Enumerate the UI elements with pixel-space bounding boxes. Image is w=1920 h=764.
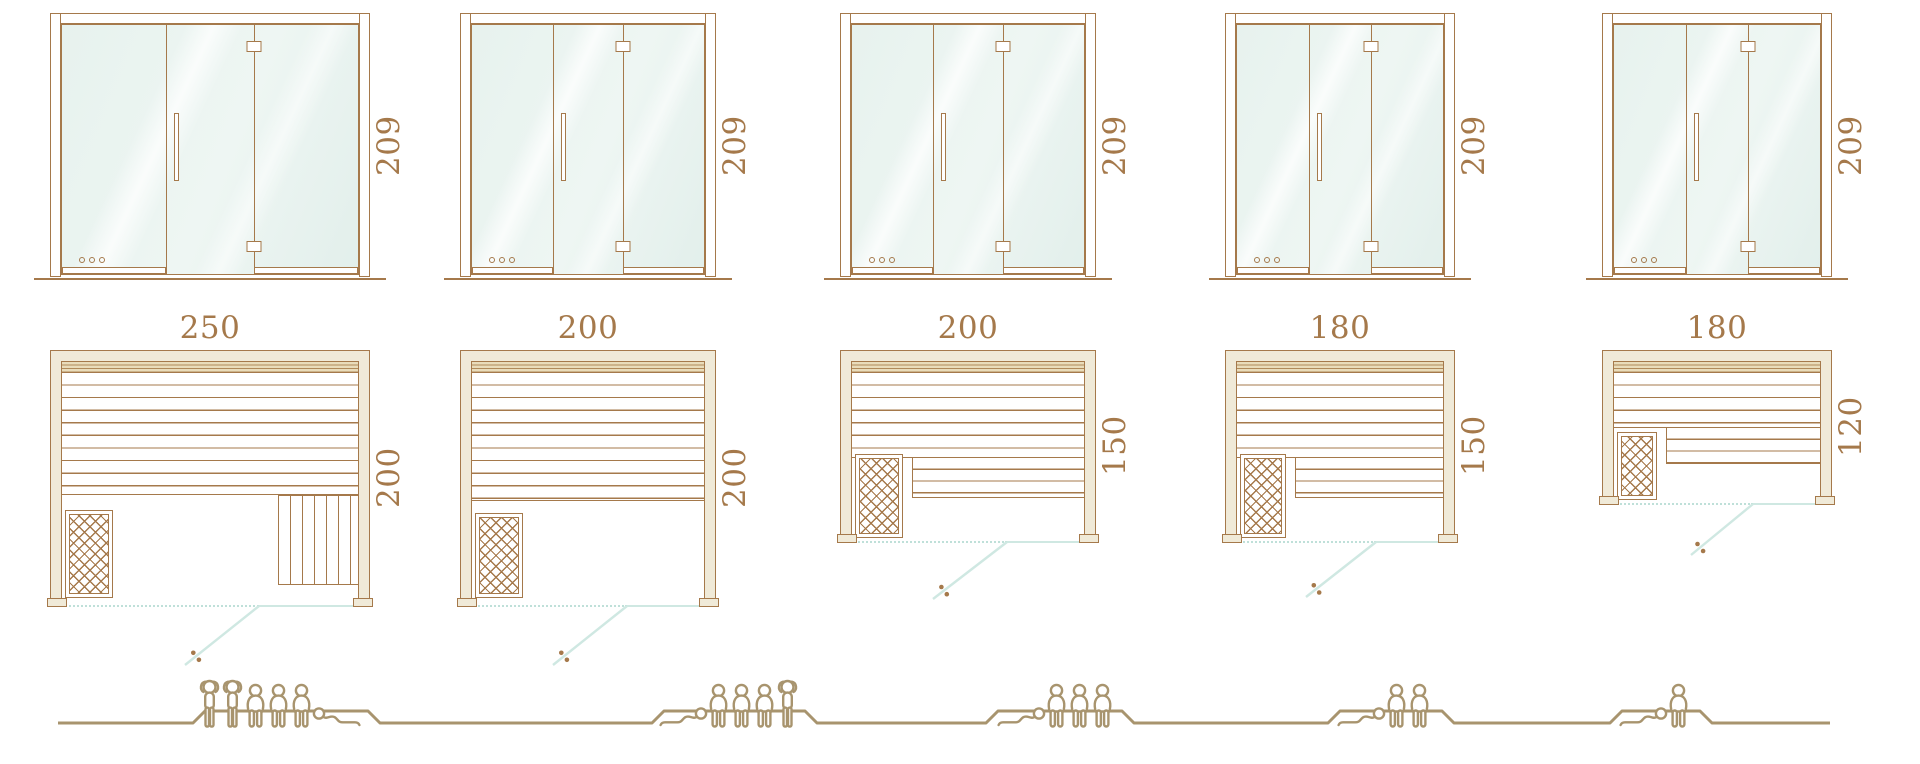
floor-plan-200x150 bbox=[840, 350, 1096, 542]
capacity-group-200x200 bbox=[661, 681, 796, 727]
frame-top-beam bbox=[840, 13, 1096, 24]
door-handle bbox=[174, 113, 179, 181]
floor-plan-200x200 bbox=[460, 350, 716, 606]
floor-plan-250x200 bbox=[50, 350, 370, 606]
frame-post-left bbox=[1602, 13, 1613, 277]
vent-holes-icon bbox=[869, 257, 895, 263]
front-elevation-200x150 bbox=[840, 13, 1096, 278]
heater-grid bbox=[69, 514, 109, 594]
vent-hole bbox=[1274, 257, 1280, 263]
door-handle bbox=[941, 113, 946, 181]
sauna-heater-icon bbox=[1617, 432, 1657, 500]
person-sitting-icon bbox=[1072, 685, 1088, 727]
frame-post-left bbox=[460, 13, 471, 277]
glass-divider-hinge bbox=[1003, 25, 1004, 274]
frame-top-beam bbox=[460, 13, 716, 24]
vent-hole bbox=[1264, 257, 1270, 263]
height-dimension-label: 209 bbox=[1457, 13, 1493, 278]
person-sitting-icon bbox=[248, 685, 264, 727]
person-sitting-icon bbox=[1095, 685, 1111, 727]
hinge-top-icon bbox=[1363, 41, 1378, 52]
width-dimension-label: 180 bbox=[1602, 311, 1832, 345]
hinge-top-icon bbox=[615, 41, 630, 52]
glass-front-dotted-line bbox=[855, 541, 1007, 543]
vent-holes-icon bbox=[79, 257, 105, 263]
vent-holes-icon bbox=[1631, 257, 1657, 263]
glass-divider-left bbox=[1309, 25, 1310, 274]
door-handle bbox=[1317, 113, 1322, 181]
wall-foot-right bbox=[353, 598, 373, 607]
vent-hole bbox=[889, 257, 895, 263]
depth-dimension-label: 120 bbox=[1834, 350, 1870, 504]
person-standing-icon bbox=[779, 681, 796, 727]
plan-interior bbox=[1613, 361, 1821, 504]
glass-front bbox=[1236, 24, 1444, 275]
glass-rail-left bbox=[1237, 267, 1309, 274]
door-knob-dot bbox=[1317, 590, 1322, 595]
wall-foot-right bbox=[699, 598, 719, 607]
sauna-heater-icon bbox=[1240, 454, 1286, 538]
capacity-group-180x150 bbox=[1339, 685, 1428, 727]
hinge-bottom-icon bbox=[1363, 241, 1378, 252]
lower-bench-slats bbox=[1666, 428, 1820, 464]
height-dimension-label: 209 bbox=[1834, 13, 1870, 278]
wall-foot-left bbox=[837, 534, 857, 543]
glass-front-dotted-line bbox=[65, 605, 259, 607]
sauna-heater-icon bbox=[65, 510, 113, 598]
door-knob-dot bbox=[939, 585, 944, 590]
height-dimension-label: 209 bbox=[1098, 13, 1134, 278]
floor-plan-180x120 bbox=[1602, 350, 1832, 504]
plan-interior bbox=[61, 361, 359, 606]
glass-front bbox=[471, 24, 705, 275]
glass-divider-hinge bbox=[1748, 25, 1749, 274]
main-bench-slats bbox=[1614, 373, 1820, 428]
wall-foot-left bbox=[1599, 496, 1619, 505]
person-sitting-icon bbox=[734, 685, 750, 727]
wall-foot-right bbox=[1079, 534, 1099, 543]
glass-divider-left bbox=[1686, 25, 1687, 274]
vent-hole bbox=[1631, 257, 1637, 263]
glass-divider-hinge bbox=[1371, 25, 1372, 274]
sauna-heater-icon bbox=[475, 513, 523, 598]
width-dimension-label: 180 bbox=[1225, 311, 1455, 345]
frame-post-right bbox=[1085, 13, 1096, 277]
glass-rail-right bbox=[1748, 267, 1820, 274]
glass-rail-right bbox=[254, 267, 358, 274]
frame-post-left bbox=[50, 13, 61, 277]
hinge-top-icon bbox=[1740, 41, 1755, 52]
vent-hole bbox=[879, 257, 885, 263]
glass-divider-left bbox=[166, 25, 167, 274]
door-knob-dot bbox=[945, 592, 950, 597]
vent-hole bbox=[99, 257, 105, 263]
door-knob-dot bbox=[1701, 549, 1706, 554]
heater-grid bbox=[1244, 458, 1282, 534]
glass-divider-hinge bbox=[623, 25, 624, 274]
back-wall-boards bbox=[852, 362, 1084, 373]
plan-interior bbox=[471, 361, 705, 606]
glass-divider-left bbox=[553, 25, 554, 274]
capacity-group-250x200 bbox=[201, 681, 359, 727]
glass-divider-left bbox=[933, 25, 934, 274]
frame-post-left bbox=[840, 13, 851, 277]
main-bench-slats bbox=[62, 373, 358, 495]
person-sitting-icon bbox=[294, 685, 310, 727]
floor-baseline bbox=[1586, 278, 1848, 280]
door-knob-dot bbox=[1695, 542, 1700, 547]
vent-holes-icon bbox=[1254, 257, 1280, 263]
glass-rail-left bbox=[1614, 267, 1686, 274]
hinge-top-icon bbox=[247, 41, 262, 52]
floor-baseline bbox=[34, 278, 386, 280]
door-knob-dot bbox=[1312, 583, 1317, 588]
door-handle bbox=[1694, 113, 1699, 181]
capacity-group-200x150 bbox=[999, 685, 1111, 727]
glass-front bbox=[1613, 24, 1821, 275]
vent-hole bbox=[1651, 257, 1657, 263]
frame-post-right bbox=[705, 13, 716, 277]
capacity-row bbox=[0, 654, 1920, 764]
back-wall-boards bbox=[62, 362, 358, 373]
back-wall-boards bbox=[1237, 362, 1443, 373]
glass-rail-left bbox=[472, 267, 553, 274]
hinge-bottom-icon bbox=[615, 241, 630, 252]
person-sitting-icon bbox=[1412, 685, 1428, 727]
frame-top-beam bbox=[1602, 13, 1832, 24]
glass-front-dotted-line bbox=[475, 605, 627, 607]
floor-plan-180x150 bbox=[1225, 350, 1455, 542]
wall-foot-left bbox=[1222, 534, 1242, 543]
hinge-top-icon bbox=[995, 41, 1010, 52]
frame-post-right bbox=[1444, 13, 1455, 277]
person-sitting-icon bbox=[1049, 685, 1065, 727]
vent-hole bbox=[1254, 257, 1260, 263]
width-dimension-label: 200 bbox=[460, 311, 716, 345]
open-door-line bbox=[1306, 542, 1376, 597]
glass-rail-right bbox=[1003, 267, 1084, 274]
heater-grid bbox=[479, 517, 519, 594]
floor-baseline bbox=[444, 278, 732, 280]
width-dimension-label: 200 bbox=[840, 311, 1096, 345]
front-elevation-200x200 bbox=[460, 13, 716, 278]
vent-hole bbox=[79, 257, 85, 263]
person-sitting-icon bbox=[757, 685, 773, 727]
frame-post-right bbox=[359, 13, 370, 277]
frame-top-beam bbox=[1225, 13, 1455, 24]
fixed-glass-line bbox=[627, 605, 701, 607]
frame-post-right bbox=[1821, 13, 1832, 277]
hinge-bottom-icon bbox=[247, 241, 262, 252]
floor-baseline bbox=[1209, 278, 1471, 280]
depth-dimension-label: 150 bbox=[1457, 350, 1493, 542]
door-handle bbox=[561, 113, 566, 181]
open-door-line bbox=[933, 542, 1007, 599]
frame-post-left bbox=[1225, 13, 1236, 277]
hinge-bottom-icon bbox=[1740, 241, 1755, 252]
wall-foot-left bbox=[47, 598, 67, 607]
capacity-group-180x120 bbox=[1621, 685, 1687, 727]
lower-bench-slats bbox=[1295, 458, 1443, 498]
heater-grid bbox=[1621, 436, 1653, 496]
glass-rail-left bbox=[852, 267, 933, 274]
person-standing-icon bbox=[201, 681, 218, 727]
front-elevation-180x120 bbox=[1602, 13, 1832, 278]
person-sitting-icon bbox=[1671, 685, 1687, 727]
depth-dimension-label: 150 bbox=[1098, 350, 1134, 542]
width-dimension-label: 250 bbox=[50, 311, 370, 345]
depth-dimension-label: 200 bbox=[718, 350, 754, 606]
main-bench-slats bbox=[1237, 373, 1443, 458]
person-sitting-icon bbox=[1389, 685, 1405, 727]
fixed-glass-line bbox=[1007, 541, 1081, 543]
glass-divider-hinge bbox=[254, 25, 255, 274]
glass-rail-right bbox=[1371, 267, 1443, 274]
vent-hole bbox=[489, 257, 495, 263]
height-dimension-label: 209 bbox=[718, 13, 754, 278]
open-door-line bbox=[1691, 504, 1753, 555]
wall-foot-right bbox=[1438, 534, 1458, 543]
vent-hole bbox=[1641, 257, 1647, 263]
fixed-glass-line bbox=[1753, 503, 1817, 505]
floor-baseline bbox=[824, 278, 1112, 280]
person-sitting-icon bbox=[711, 685, 727, 727]
person-standing-icon bbox=[224, 681, 241, 727]
glass-front-dotted-line bbox=[1240, 541, 1376, 543]
person-sitting-icon bbox=[271, 685, 287, 727]
fixed-glass-line bbox=[259, 605, 355, 607]
main-bench-slats bbox=[852, 373, 1084, 458]
sauna-heater-icon bbox=[855, 454, 903, 538]
back-wall-boards bbox=[472, 362, 704, 373]
glass-rail-right bbox=[623, 267, 704, 274]
front-elevation-180x150 bbox=[1225, 13, 1455, 278]
front-elevation-250x200 bbox=[50, 13, 370, 278]
fixed-glass-line bbox=[1376, 541, 1440, 543]
glass-front bbox=[851, 24, 1085, 275]
lower-bench-slats bbox=[912, 458, 1084, 498]
height-dimension-label: 209 bbox=[372, 13, 408, 278]
sauna-comparison-diagram: 2092502002092002002092001502091801502091… bbox=[0, 0, 1920, 764]
main-bench-slats bbox=[472, 373, 704, 501]
vent-hole bbox=[509, 257, 515, 263]
wall-foot-right bbox=[1815, 496, 1835, 505]
vent-hole bbox=[499, 257, 505, 263]
glass-rail-left bbox=[62, 267, 166, 274]
frame-top-beam bbox=[50, 13, 370, 24]
glass-front-dotted-line bbox=[1617, 503, 1753, 505]
vent-hole bbox=[89, 257, 95, 263]
depth-dimension-label: 200 bbox=[372, 350, 408, 606]
hinge-bottom-icon bbox=[995, 241, 1010, 252]
plan-interior bbox=[1236, 361, 1444, 542]
vent-holes-icon bbox=[489, 257, 515, 263]
heater-grid bbox=[859, 458, 899, 534]
glass-front bbox=[61, 24, 359, 275]
plan-interior bbox=[851, 361, 1085, 542]
back-wall-boards bbox=[1614, 362, 1820, 373]
side-bench-slats bbox=[278, 495, 358, 585]
vent-hole bbox=[869, 257, 875, 263]
wall-foot-left bbox=[457, 598, 477, 607]
